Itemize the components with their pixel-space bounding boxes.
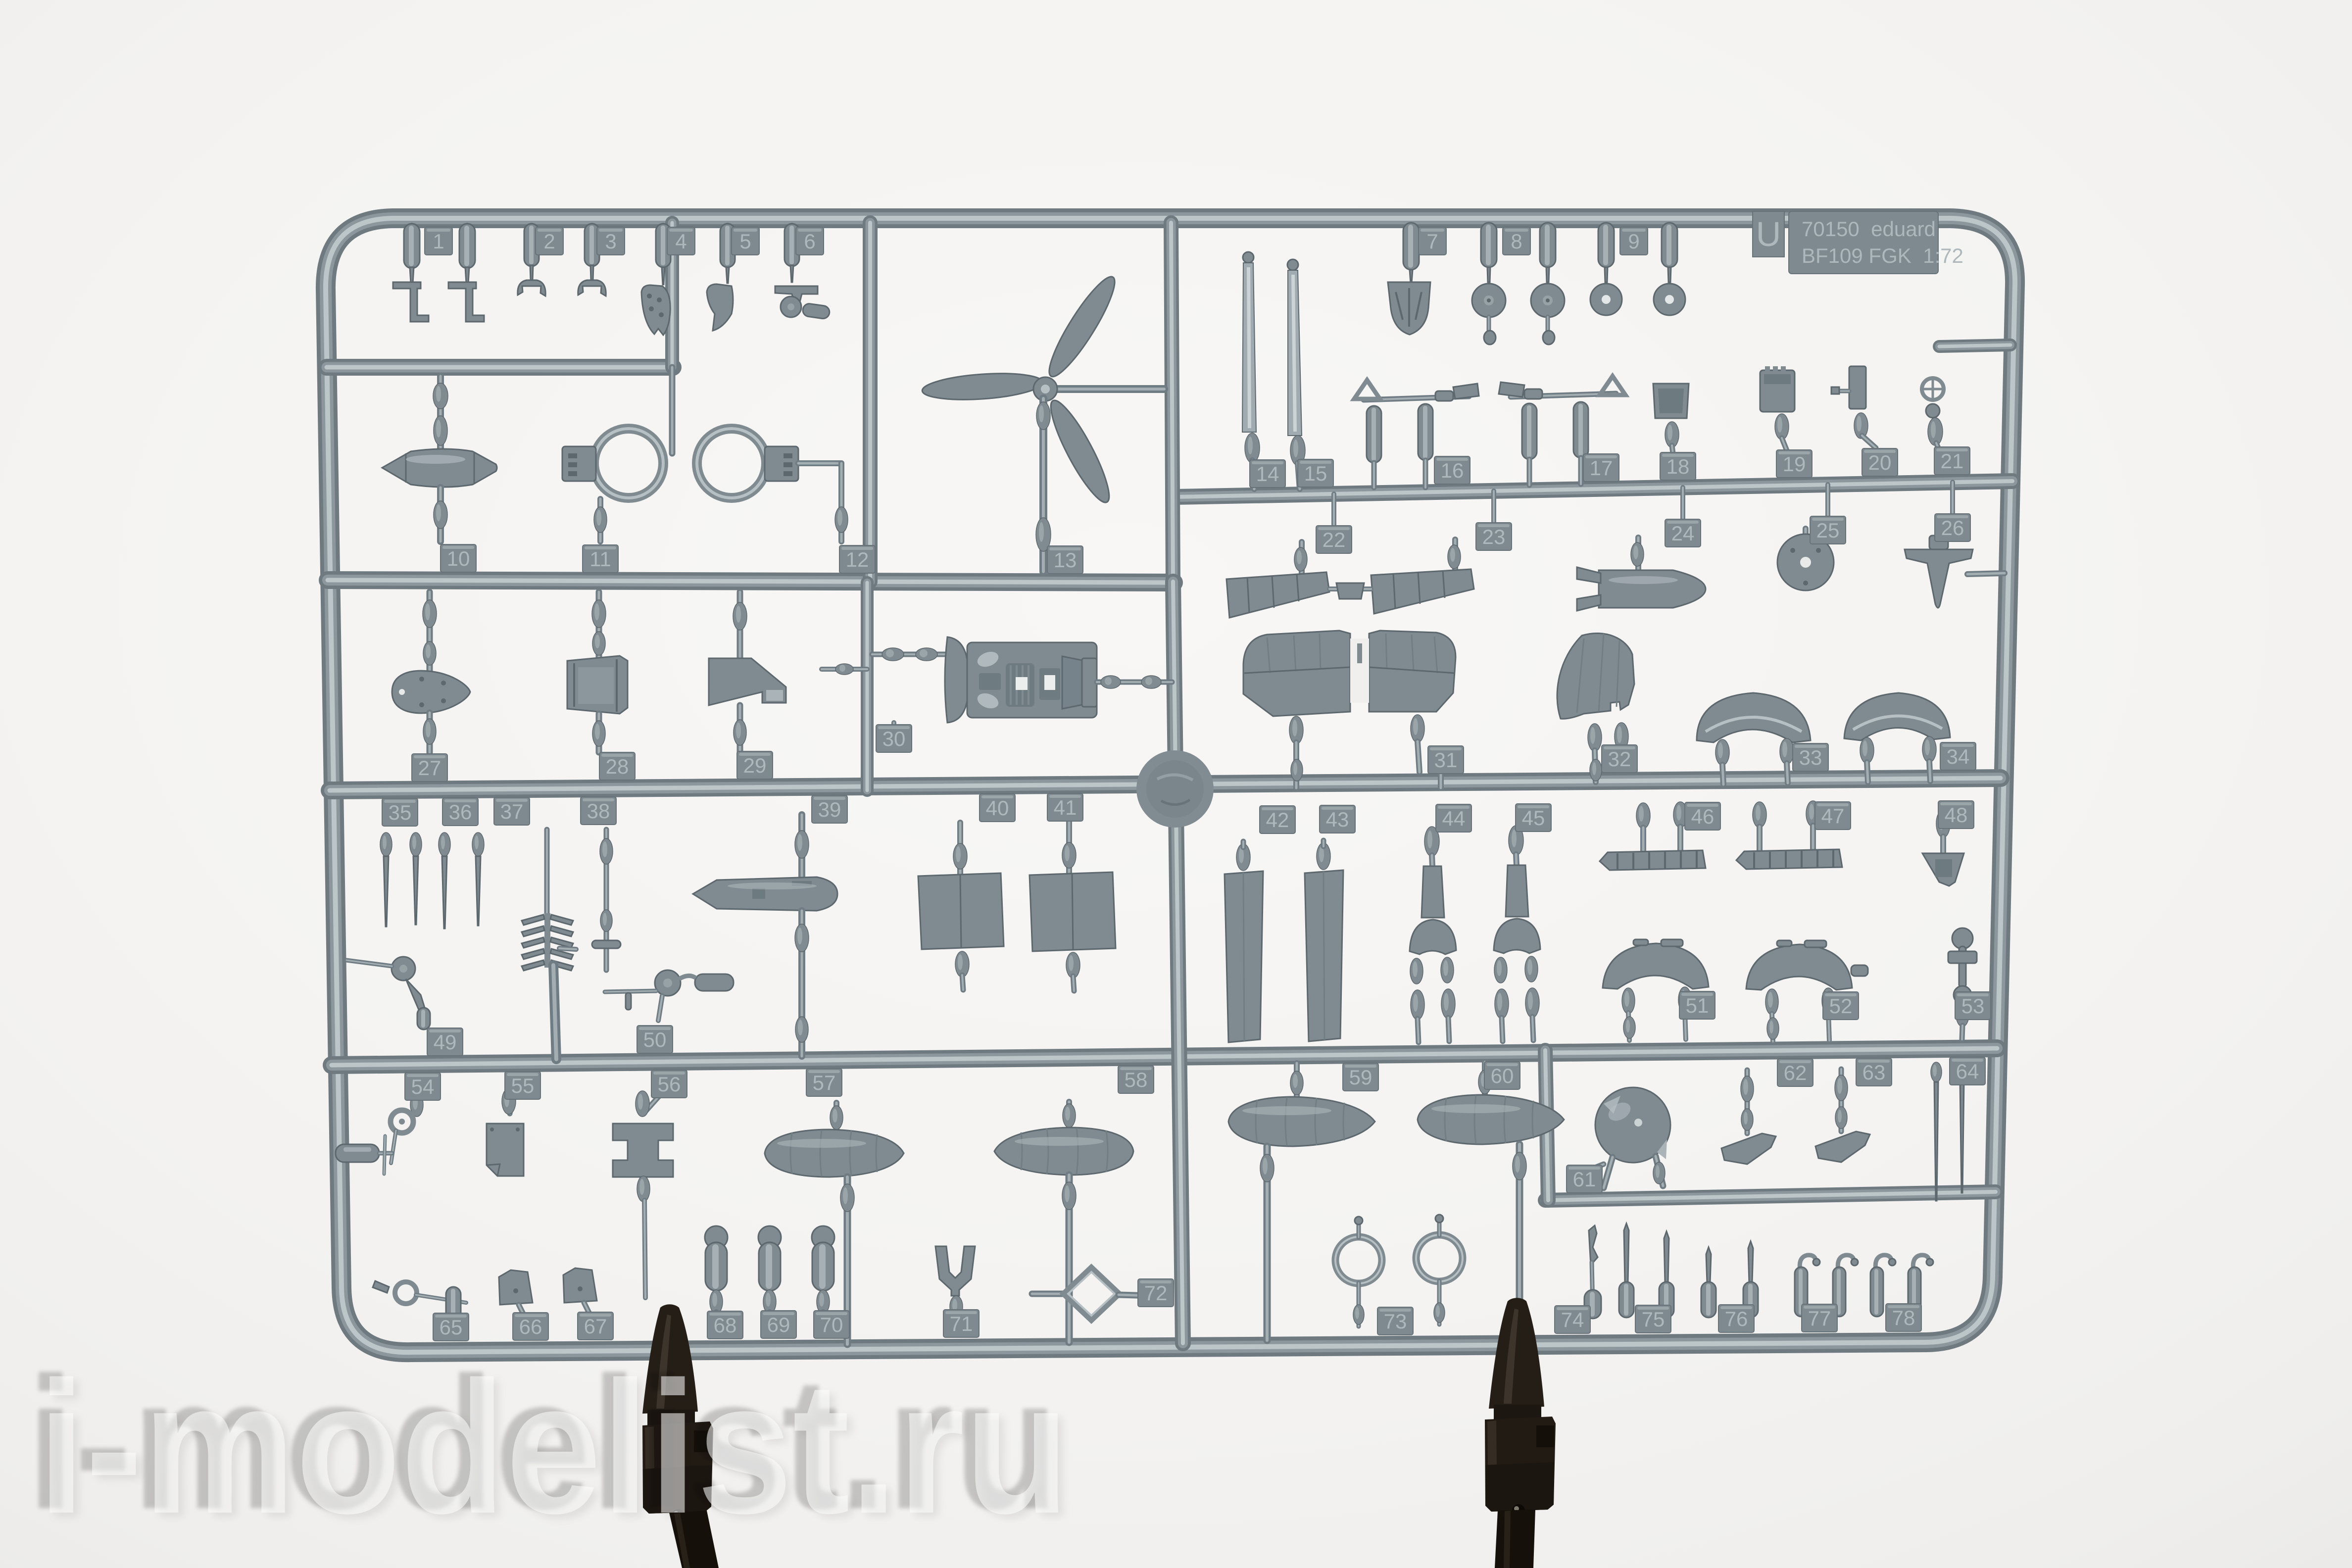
svg-text:72: 72 — [1144, 1281, 1168, 1305]
svg-text:1: 1 — [433, 230, 444, 253]
svg-text:75: 75 — [1642, 1308, 1665, 1331]
svg-text:65: 65 — [440, 1316, 463, 1339]
svg-text:4: 4 — [675, 230, 686, 253]
svg-text:51: 51 — [1686, 994, 1709, 1017]
svg-text:23: 23 — [1482, 525, 1506, 548]
svg-text:49: 49 — [434, 1030, 457, 1054]
svg-text:27: 27 — [418, 756, 441, 780]
svg-text:55: 55 — [511, 1074, 535, 1097]
svg-text:32: 32 — [1608, 747, 1631, 771]
svg-text:41: 41 — [1054, 796, 1077, 819]
svg-text:53: 53 — [1961, 994, 1985, 1018]
svg-text:U: U — [1756, 215, 1781, 253]
svg-text:59: 59 — [1349, 1066, 1372, 1089]
svg-text:26: 26 — [1941, 516, 1964, 539]
svg-text:22: 22 — [1323, 528, 1346, 551]
svg-text:29: 29 — [743, 754, 767, 777]
svg-text:67: 67 — [584, 1315, 607, 1338]
svg-text:17: 17 — [1590, 456, 1613, 480]
svg-text:47: 47 — [1821, 804, 1845, 828]
svg-text:11: 11 — [589, 547, 611, 571]
svg-text:24: 24 — [1671, 522, 1695, 545]
svg-text:2: 2 — [543, 230, 555, 253]
svg-text:56: 56 — [658, 1073, 681, 1096]
svg-text:39: 39 — [818, 798, 841, 821]
svg-text:6: 6 — [804, 230, 815, 253]
svg-text:33: 33 — [1799, 746, 1822, 769]
svg-text:30: 30 — [882, 727, 906, 750]
svg-text:52: 52 — [1829, 994, 1853, 1018]
svg-text:12: 12 — [846, 548, 869, 571]
svg-text:71: 71 — [950, 1312, 973, 1335]
svg-text:10: 10 — [447, 547, 470, 570]
svg-text:70150 eduard: 70150 eduard — [1802, 217, 1936, 241]
svg-text:34: 34 — [1947, 745, 1970, 768]
svg-text:40: 40 — [986, 796, 1009, 820]
svg-text:78: 78 — [1892, 1306, 1915, 1329]
svg-text:61: 61 — [1573, 1168, 1596, 1191]
svg-text:16: 16 — [1441, 459, 1464, 482]
svg-text:62: 62 — [1784, 1061, 1807, 1084]
svg-text:46: 46 — [1691, 805, 1715, 828]
svg-text:BF109 FGK 1:72: BF109 FGK 1:72 — [1802, 244, 1963, 267]
svg-text:42: 42 — [1266, 808, 1289, 832]
svg-text:21: 21 — [1941, 449, 1964, 473]
svg-text:38: 38 — [587, 799, 610, 823]
svg-text:13: 13 — [1054, 548, 1077, 572]
svg-text:74: 74 — [1561, 1308, 1584, 1331]
svg-text:43: 43 — [1326, 808, 1349, 831]
svg-text:19: 19 — [1783, 452, 1806, 476]
svg-text:14: 14 — [1256, 462, 1279, 486]
svg-text:76: 76 — [1725, 1307, 1748, 1330]
svg-text:70: 70 — [820, 1313, 843, 1336]
svg-text:63: 63 — [1862, 1061, 1886, 1084]
svg-text:35: 35 — [389, 801, 412, 824]
svg-text:50: 50 — [643, 1028, 667, 1051]
svg-text:18: 18 — [1666, 455, 1690, 478]
svg-text:69: 69 — [767, 1313, 790, 1336]
svg-text:45: 45 — [1522, 806, 1545, 830]
svg-text:66: 66 — [519, 1315, 542, 1338]
svg-text:9: 9 — [1628, 230, 1639, 253]
svg-text:36: 36 — [449, 800, 472, 824]
svg-text:20: 20 — [1868, 451, 1892, 474]
svg-text:73: 73 — [1384, 1310, 1407, 1333]
svg-text:60: 60 — [1491, 1064, 1514, 1087]
svg-text:44: 44 — [1442, 807, 1466, 830]
svg-text:37: 37 — [500, 800, 524, 823]
svg-text:7: 7 — [1426, 230, 1438, 253]
svg-text:31: 31 — [1434, 748, 1458, 772]
svg-text:25: 25 — [1816, 519, 1840, 542]
svg-text:i-modelist.ru: i-modelist.ru — [38, 1342, 1070, 1553]
svg-text:77: 77 — [1808, 1307, 1831, 1330]
svg-text:58: 58 — [1125, 1068, 1148, 1091]
svg-text:54: 54 — [411, 1075, 435, 1098]
svg-text:64: 64 — [1956, 1060, 1979, 1083]
svg-text:68: 68 — [714, 1314, 737, 1337]
svg-text:3: 3 — [605, 230, 616, 253]
svg-text:48: 48 — [1945, 803, 1968, 827]
svg-text:15: 15 — [1304, 462, 1327, 485]
svg-text:57: 57 — [813, 1071, 836, 1094]
svg-text:8: 8 — [1511, 230, 1522, 253]
svg-text:5: 5 — [739, 230, 751, 253]
svg-text:28: 28 — [606, 755, 629, 778]
